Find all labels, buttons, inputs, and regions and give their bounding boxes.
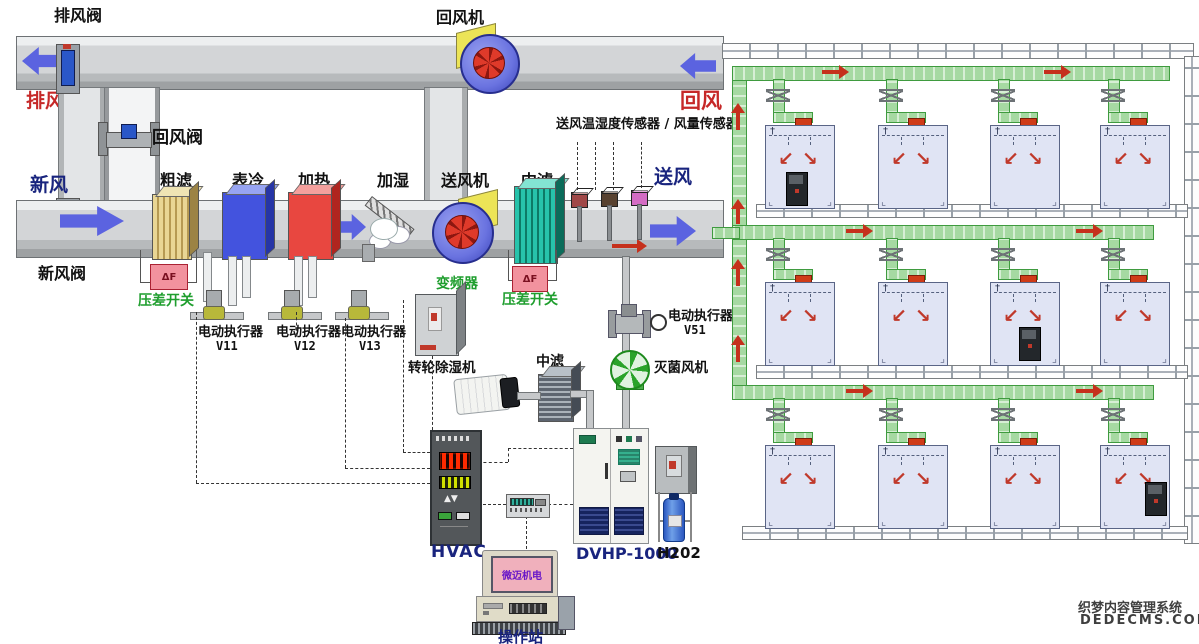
duct-damper-icon [1101, 408, 1125, 421]
floor-corner-right-icon: ⌟ [940, 515, 945, 528]
ceiling-line [994, 292, 1056, 293]
duct-damper-icon [991, 248, 1015, 261]
fresh-air-label: 新风 [30, 176, 68, 196]
duct-damper-icon [991, 408, 1015, 421]
return-valve-device [98, 118, 160, 158]
ceiling-line [1104, 455, 1166, 456]
valve-motor-symbol-icon [650, 314, 667, 331]
h2o2-label: H202 [657, 546, 701, 562]
floor-corner-right-icon: ⌟ [827, 195, 832, 208]
ceiling-return-duct [722, 43, 1194, 59]
actuator-v12 [276, 290, 320, 324]
airflow-right-icon: ↘ [802, 468, 818, 490]
clean-room: †↙↘⌞⌟ [1100, 282, 1170, 366]
fresh-air-valve-label: 新风阀 [38, 266, 86, 283]
top-return-duct [16, 36, 724, 90]
floor-corner-right-icon: ⌟ [940, 195, 945, 208]
clean-room: †↙↘⌞⌟ [990, 125, 1060, 209]
floor-corner-right-icon: ⌟ [1052, 195, 1057, 208]
ceiling-mark-icon: † [770, 446, 775, 457]
panel-buttons-icon: ▲▼ [444, 494, 458, 504]
room-equipment-icon [1019, 327, 1041, 361]
duct-damper-icon [1101, 248, 1125, 261]
watermark-line2: DEDECMS.COM [1080, 613, 1199, 628]
supply-link-duct [712, 227, 740, 239]
operator-station-label: 操作站 [498, 630, 543, 644]
floor-corner-left-icon: ⌞ [1103, 352, 1108, 365]
ceiling-line [1104, 292, 1166, 293]
floor-corner-left-icon: ⌞ [881, 515, 886, 528]
rotary-dehumidifier [453, 369, 521, 421]
airflow-left-icon: ↙ [1003, 305, 1019, 327]
h2o2-bottle [663, 498, 685, 542]
cooling-coil [222, 192, 268, 260]
floor-corner-left-icon: ⌞ [1103, 515, 1108, 528]
floor-corner-left-icon: ⌞ [993, 352, 998, 365]
actuator-v13-label: 电动执行器 [341, 326, 406, 340]
airflow-left-icon: ↙ [778, 305, 794, 327]
rotary-dehumidifier-label: 转轮除湿机 [408, 361, 476, 375]
coarse-filter [152, 194, 192, 260]
hvac-label: HVAC [431, 544, 487, 562]
airflow-left-icon: ↙ [1003, 468, 1019, 490]
clean-room: †↙↘⌞⌟ [1100, 445, 1170, 529]
room-equipment-icon [1145, 482, 1167, 516]
computer-tower [558, 596, 575, 630]
duct-damper-icon [766, 89, 790, 102]
clean-room: †↙↘⌞⌟ [765, 445, 835, 529]
ceiling-mark-icon: † [995, 126, 1000, 137]
ceiling-line [882, 455, 944, 456]
airflow-left-icon: ↙ [891, 148, 907, 170]
airflow-left-icon: ↙ [778, 468, 794, 490]
actuator-v51-label: 电动执行器 [668, 310, 733, 324]
hvac-controller: ▲▼ [430, 430, 482, 546]
clean-room: †↙↘⌞⌟ [990, 282, 1060, 366]
h2o2-generator [655, 446, 697, 494]
clean-room: †↙↘⌞⌟ [878, 445, 948, 529]
clean-room: †↙↘⌞⌟ [878, 125, 948, 209]
humidifier-elbow-icon [362, 244, 375, 262]
ceiling-mark-icon: † [770, 126, 775, 137]
floor-corner-right-icon: ⌟ [827, 352, 832, 365]
airflow-right-icon: ↘ [802, 305, 818, 327]
dp-switch-1-label: 压差开关 [138, 294, 194, 309]
desktop-computer [476, 596, 562, 622]
floor-corner-right-icon: ⌟ [1162, 515, 1167, 528]
supply-fan [430, 186, 504, 268]
floor-corner-left-icon: ⌞ [993, 515, 998, 528]
sensor-group-label: 送风温湿度传感器 / 风量传感器 [556, 118, 739, 132]
airflow-left-icon: ↙ [778, 148, 794, 170]
airflow-right-icon: ↘ [1137, 148, 1153, 170]
duct-flow-arrow-icon [612, 244, 638, 248]
airflow-right-icon: ↘ [1027, 148, 1043, 170]
network-gateway [506, 494, 550, 518]
heating-coil [288, 192, 334, 260]
airflow-left-icon: ↙ [1113, 148, 1129, 170]
airflow-right-icon: ↘ [915, 468, 931, 490]
supply-air-label: 送风 [654, 168, 692, 188]
actuator-v11 [198, 290, 242, 324]
ceiling-mark-icon: † [770, 283, 775, 294]
floor-corner-right-icon: ⌟ [940, 352, 945, 365]
humidifier [356, 192, 422, 268]
hvac-system-diagram: 回风机 排风阀 排风 回风阀 新风 新风阀 粗滤 表冷 加热 加湿 送风机 中滤… [0, 0, 1199, 644]
ceiling-line [994, 135, 1056, 136]
dp-switch-2-label: 压差开关 [502, 293, 558, 308]
floor-corner-right-icon: ⌟ [827, 515, 832, 528]
ceiling-mark-icon: † [995, 446, 1000, 457]
duct-damper-icon [1101, 89, 1125, 102]
airflow-left-icon: ↙ [891, 468, 907, 490]
actuator-v13 [343, 290, 387, 324]
actuator-v12-label: 电动执行器 [276, 326, 341, 340]
floor-corner-left-icon: ⌞ [768, 195, 773, 208]
return-air-label: 回风 [680, 90, 722, 112]
airflow-right-icon: ↘ [1027, 468, 1043, 490]
duct-damper-icon [991, 89, 1015, 102]
steam-cloud-icon [370, 218, 398, 240]
ceiling-mark-icon: † [883, 126, 888, 137]
ceiling-mark-icon: † [883, 283, 888, 294]
duct-damper-icon [766, 408, 790, 421]
room-equipment-icon [786, 172, 808, 206]
ceiling-mark-icon: † [1105, 283, 1110, 294]
exhaust-valve-device [56, 44, 80, 94]
fan-hub-icon [473, 47, 505, 79]
ceiling-mark-icon: † [883, 446, 888, 457]
clean-room: †↙↘⌞⌟ [765, 282, 835, 366]
floor-corner-right-icon: ⌟ [1162, 195, 1167, 208]
dp-switch-2: ΔF [512, 266, 548, 292]
mid-filter [514, 186, 558, 264]
floor-corner-left-icon: ⌞ [768, 515, 773, 528]
airflow-left-icon: ↙ [1003, 148, 1019, 170]
actuator-v12-tag: V12 [294, 340, 316, 353]
ceiling-line [882, 292, 944, 293]
ceiling-line [769, 292, 831, 293]
clean-room: †↙↘⌞⌟ [990, 445, 1060, 529]
dp-switch-1: ΔF [150, 264, 188, 290]
ceiling-mark-icon: † [1105, 446, 1110, 457]
clean-room: †↙↘⌞⌟ [765, 125, 835, 209]
duct-damper-icon [879, 248, 903, 261]
ceiling-line [882, 135, 944, 136]
airflow-right-icon: ↘ [802, 148, 818, 170]
airflow-left-icon: ↙ [1113, 305, 1129, 327]
airflow-left-icon: ↙ [891, 305, 907, 327]
floor-corner-right-icon: ⌟ [1162, 352, 1167, 365]
duct-damper-icon [879, 408, 903, 421]
duct-damper-icon [766, 248, 790, 261]
ceiling-line [769, 135, 831, 136]
sterilizing-fan-label: 灭菌风机 [654, 361, 708, 375]
monitor-screen: 微迈机电 [491, 556, 553, 593]
airflow-right-icon: ↘ [915, 148, 931, 170]
actuator-v11-tag: V11 [216, 340, 238, 353]
floor-corner-left-icon: ⌞ [881, 195, 886, 208]
airflow-right-icon: ↘ [915, 305, 931, 327]
exhaust-valve-label: 排风阀 [54, 8, 102, 25]
actuator-v51 [608, 304, 654, 342]
monitor: 微迈机电 [482, 550, 558, 598]
sterilizing-fan [610, 350, 650, 390]
ceiling-mark-icon: † [995, 283, 1000, 294]
right-return-riser-duct [1184, 56, 1199, 544]
floor-corner-left-icon: ⌞ [768, 352, 773, 365]
humidifier-label: 加湿 [377, 173, 409, 190]
clean-room: †↙↘⌞⌟ [1100, 125, 1170, 209]
ceiling-mark-icon: † [1105, 126, 1110, 137]
airflow-left-icon: ↙ [1113, 468, 1129, 490]
ceiling-line [994, 455, 1056, 456]
airflow-right-icon: ↘ [1027, 305, 1043, 327]
floor-corner-right-icon: ⌟ [1052, 515, 1057, 528]
ceiling-line [1104, 135, 1166, 136]
actuator-v51-tag: V51 [684, 324, 706, 337]
actuator-v11-label: 电动执行器 [198, 326, 263, 340]
ceiling-line [769, 455, 831, 456]
duct-damper-icon [879, 89, 903, 102]
row2-return-duct [756, 365, 1188, 379]
dvhp-cabinet [573, 428, 649, 544]
mid-filter-2 [538, 374, 574, 422]
actuator-v13-tag: V13 [359, 340, 381, 353]
return-fan-label: 回风机 [436, 10, 484, 27]
return-valve-label: 回风阀 [152, 130, 203, 148]
airflow-right-icon: ↘ [1137, 305, 1153, 327]
clean-room: †↙↘⌞⌟ [878, 282, 948, 366]
floor-corner-left-icon: ⌞ [1103, 195, 1108, 208]
inverter-cabinet [415, 294, 459, 356]
floor-corner-right-icon: ⌟ [1052, 352, 1057, 365]
floor-corner-left-icon: ⌞ [881, 352, 886, 365]
row1-supply-duct [732, 66, 1170, 81]
floor-corner-left-icon: ⌞ [993, 195, 998, 208]
